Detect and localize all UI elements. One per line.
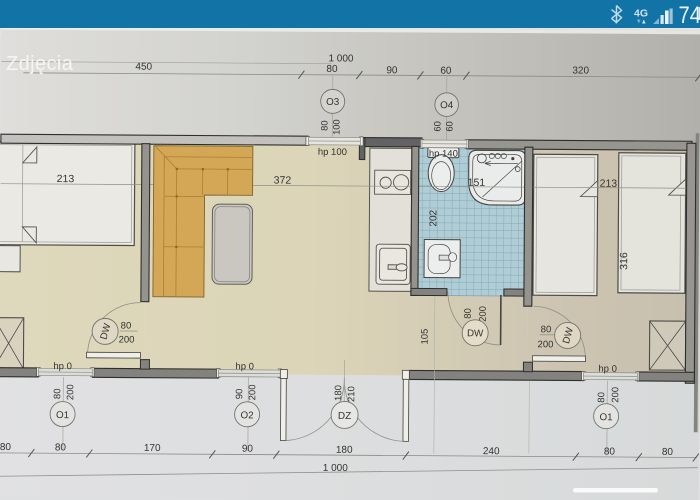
svg-text:80: 80 [55, 442, 67, 453]
svg-text:1 000: 1 000 [328, 53, 354, 64]
svg-text:180: 180 [333, 385, 344, 401]
svg-text:213: 213 [57, 173, 75, 185]
svg-text:80: 80 [52, 388, 63, 399]
svg-text:240: 240 [483, 446, 500, 457]
svg-text:60: 60 [444, 121, 454, 131]
svg-text:202: 202 [428, 209, 439, 226]
svg-text:O1: O1 [56, 410, 69, 421]
svg-text:213: 213 [600, 178, 618, 190]
svg-text:320: 320 [572, 65, 589, 76]
svg-text:hp 0: hp 0 [598, 364, 617, 375]
svg-text:200: 200 [65, 384, 76, 400]
svg-text:O1: O1 [600, 412, 613, 423]
svg-text:80: 80 [319, 120, 329, 130]
svg-text:80: 80 [463, 308, 474, 319]
svg-text:80: 80 [326, 64, 338, 75]
svg-text:hp 100: hp 100 [318, 147, 347, 158]
svg-text:316: 316 [618, 252, 630, 270]
svg-text:80: 80 [604, 446, 616, 457]
svg-text:O3: O3 [326, 97, 340, 108]
svg-text:80: 80 [662, 447, 674, 458]
svg-text:80: 80 [121, 320, 132, 331]
svg-text:151: 151 [468, 177, 486, 189]
svg-text:450: 450 [135, 62, 152, 73]
svg-text:DW: DW [467, 328, 484, 339]
svg-text:80: 80 [0, 442, 11, 453]
svg-text:60: 60 [440, 66, 452, 77]
svg-text:200: 200 [119, 334, 135, 345]
svg-text:hp 0: hp 0 [235, 361, 254, 372]
svg-text:170: 170 [144, 443, 161, 454]
svg-text:90: 90 [386, 65, 398, 76]
svg-text:180: 180 [336, 445, 353, 456]
svg-text:80: 80 [541, 324, 552, 335]
svg-text:O4: O4 [440, 100, 454, 111]
svg-text:90: 90 [242, 444, 254, 455]
svg-text:hp 0: hp 0 [53, 361, 72, 372]
svg-text:60: 60 [432, 121, 442, 131]
svg-text:210: 210 [346, 386, 357, 402]
svg-text:O2: O2 [241, 410, 254, 421]
svg-text:DZ: DZ [338, 411, 351, 422]
svg-text:105: 105 [420, 329, 431, 345]
svg-text:80: 80 [596, 392, 607, 403]
svg-text:200: 200 [247, 384, 258, 400]
svg-text:200: 200 [478, 306, 489, 322]
svg-text:74: 74 [679, 1, 700, 28]
svg-text:4G: 4G [634, 8, 648, 20]
svg-text:hp 140: hp 140 [429, 149, 458, 160]
svg-text:90: 90 [234, 389, 245, 400]
svg-text:372: 372 [274, 174, 292, 186]
svg-text:200: 200 [610, 387, 621, 403]
svg-text:200: 200 [538, 339, 554, 350]
svg-text:100: 100 [331, 119, 341, 135]
